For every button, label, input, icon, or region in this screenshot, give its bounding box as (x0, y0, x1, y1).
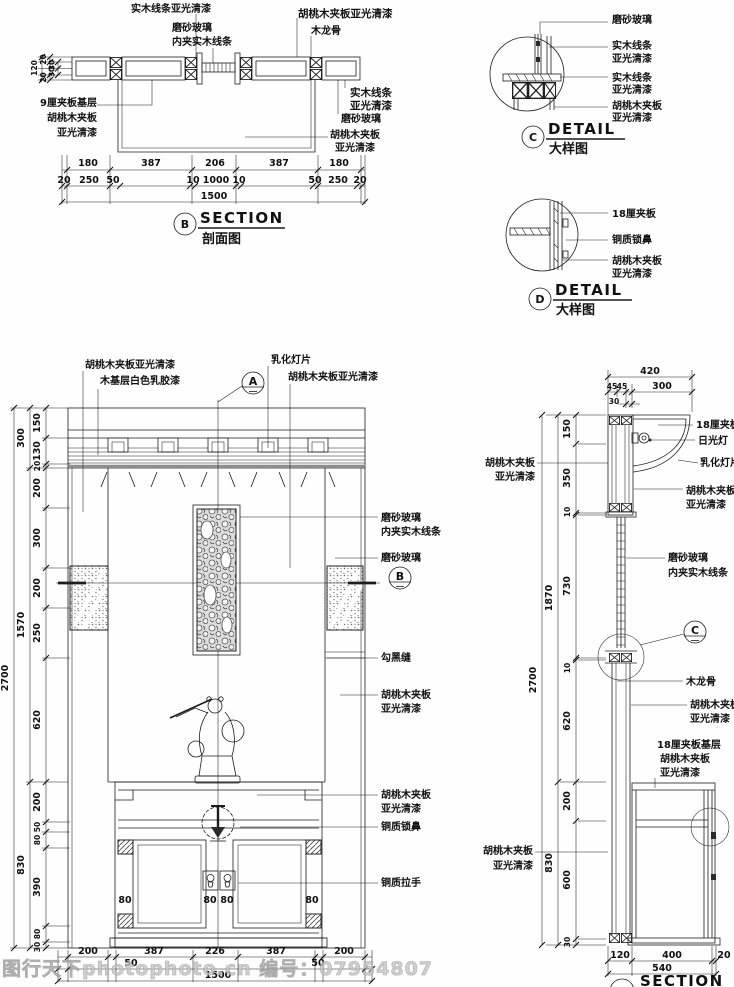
dim-e-20: 20 (33, 461, 42, 471)
label-e-brass-pull: 铜质拉手 (381, 876, 421, 889)
dim-a-45a: 45 (607, 382, 617, 391)
dim-e-300: 300 (16, 428, 27, 448)
statue-figure (170, 697, 244, 783)
label-solid-wood-varnish: 实木线条亚光清漆 (131, 2, 211, 15)
detail-d-drawing: 18厘夹板 铜质锁鼻 胡桃木夹板 亚光清漆 D DETAIL 大样图 (506, 199, 663, 318)
label-a-walnut-r7b: 亚光清漆 (690, 712, 730, 725)
detail-c-title: DETAIL (548, 120, 616, 138)
label-a-fluorescent: 日光灯 (698, 434, 728, 447)
label-e-frosted: 磨砂玻璃 (380, 511, 421, 524)
cad-sheet: 120 20 20 30 30 实木线条亚光清漆 磨砂玻璃 内夹实木线条 胡桃木… (0, 0, 734, 987)
label-matte-varnish: 亚光清漆 (57, 126, 97, 139)
dim-eb-50b: 50 (311, 958, 325, 969)
label-walnut-r2: 亚光清漆 (335, 141, 375, 154)
label-e-inner-wood: 内夹实木线条 (381, 525, 442, 538)
label-e-black-seam: 勾黑缝 (381, 651, 411, 664)
dim-e-200c: 200 (32, 792, 43, 812)
dim-a-200: 200 (562, 791, 573, 811)
detail-d-marker-letter: D (535, 293, 544, 306)
dim-b-250a: 250 (79, 175, 99, 186)
dim-a-420: 420 (640, 366, 660, 377)
section-b-marker-letter: B (181, 218, 189, 231)
label-a-keel: 木龙骨 (685, 675, 716, 688)
dim-a-830: 830 (544, 853, 555, 873)
dim-a-1870: 1870 (544, 584, 555, 611)
dim-b-20a: 20 (57, 175, 71, 186)
dim-a-10a: 10 (563, 507, 572, 517)
label-a-frosted: 磨砂玻璃 (667, 551, 708, 564)
dim-30b: 30 (48, 67, 57, 77)
dim-door-80c: 80 (220, 895, 234, 906)
dim-door-80d: 80 (305, 895, 319, 906)
dim-a-45b: 45 (617, 382, 627, 391)
label-e-wood-base-white: 木基层白色乳胶漆 (99, 374, 180, 387)
dim-e-80a: 80 (33, 835, 42, 845)
dim-ab-20: 20 (717, 950, 731, 961)
dim-eb-387a: 387 (144, 946, 164, 957)
dim-ab-400: 400 (662, 950, 682, 961)
dim-b-387b: 387 (269, 158, 289, 169)
dim-e-30: 30 (33, 942, 42, 952)
dim-e-2700: 2700 (0, 664, 11, 691)
dim-e-250: 250 (32, 623, 43, 643)
label-walnut-r1: 胡桃木夹板 (330, 128, 381, 141)
detail-c-linework (490, 22, 608, 111)
label-a-walnut-left1b: 亚光清漆 (495, 470, 535, 483)
section-b-drawing: 120 20 20 30 30 实木线条亚光清漆 磨砂玻璃 内夹实木线条 胡桃木… (30, 2, 393, 247)
section-a-marker-c: C (691, 624, 699, 637)
label-a-light-sheet: 乳化灯片 (700, 456, 734, 469)
section-b-title: SECTION (200, 209, 284, 227)
label-c-varnish-2: 亚光清漆 (612, 83, 652, 96)
dim-ab-120: 120 (610, 950, 630, 961)
dim-e-200b: 200 (32, 578, 43, 598)
detail-d-title-cn: 大样图 (556, 302, 595, 318)
label-d-varnish: 亚光清漆 (612, 267, 652, 280)
dim-e-300b: 300 (32, 528, 43, 548)
dim-e-200a: 200 (32, 478, 43, 498)
label-walnut-varnish-top: 胡桃木夹板亚光清漆 (298, 7, 393, 20)
label-d-brass-hasp: 铜质锁鼻 (612, 233, 652, 246)
dim-a-730: 730 (562, 576, 573, 596)
label-a-walnut-left1: 胡桃木夹板 (485, 456, 536, 469)
elevation-marker-a: A (249, 375, 258, 388)
dim-b-250b: 250 (328, 175, 348, 186)
dim-b-50a: 50 (106, 175, 120, 186)
detail-d-linework (506, 199, 608, 271)
dim-eb-200b: 200 (334, 946, 354, 957)
dim-b-1000: 1000 (203, 175, 230, 186)
dim-a-620: 620 (562, 711, 573, 731)
label-solid-wood-r1: 实木线条 (350, 86, 392, 99)
label-c-solid-wood-1: 实木线条 (612, 39, 653, 52)
label-a-walnut-left2: 胡桃木夹板 (483, 844, 534, 857)
dim-e-150: 150 (32, 413, 43, 433)
dim-a-10b: 10 (563, 663, 572, 673)
dim-e-830: 830 (16, 855, 27, 875)
detail-c-drawing: 磨砂玻璃 实木线条 亚光清漆 实木线条 亚光清漆 胡桃木夹板 亚光清漆 C DE… (490, 13, 663, 157)
elevation-drawing: A B 胡桃木夹板亚光清漆 木基层白色乳胶漆 乳化灯片 胡桃木夹板亚光清漆 磨砂… (0, 353, 442, 984)
dim-b-180b: 180 (329, 158, 349, 169)
dim-a-30: 30 (609, 397, 619, 406)
dim-b-10a: 10 (186, 175, 200, 186)
dim-eb-1500: 1500 (205, 970, 232, 981)
label-a-18base-c: 亚光清漆 (660, 766, 700, 779)
dim-b-50b: 50 (308, 175, 322, 186)
label-frosted-glass: 磨砂玻璃 (171, 21, 212, 34)
dim-b-10b: 10 (232, 175, 246, 186)
label-e-walnut-top2: 胡桃木夹板亚光清漆 (288, 370, 378, 383)
dim-120: 120 (30, 60, 39, 76)
label-c-walnut: 胡桃木夹板 (612, 99, 663, 112)
dim-eb-387b: 387 (266, 946, 286, 957)
label-a-18base: 18厘夹板基层 (657, 738, 721, 751)
dim-door-80a: 80 (118, 895, 132, 906)
section-a-drawing: C 胡桃木夹板 亚光清漆 18厘夹板 日光灯 乳化灯片 胡桃木夹板 亚光清漆 磨… (483, 366, 734, 987)
label-c-varnish-1: 亚光清漆 (612, 52, 652, 65)
dim-a-150: 150 (562, 419, 573, 439)
label-a-walnut-r7: 胡桃木夹板 (690, 698, 734, 711)
label-e-walnut-r1: 胡桃木夹板 (381, 688, 432, 701)
label-e-walnut-top: 胡桃木夹板亚光清漆 (85, 358, 175, 371)
dim-e-130: 130 (32, 441, 43, 461)
label-e-walnut-r2b: 亚光清漆 (381, 802, 421, 815)
dim-eb-226: 226 (205, 946, 225, 957)
section-b-title-cn: 剖面图 (202, 231, 241, 247)
dim-a-350: 350 (562, 468, 573, 488)
label-a-walnut-r4: 胡桃木夹板 (686, 484, 734, 497)
dim-b-206: 206 (205, 158, 225, 169)
dim-eb-200a: 200 (78, 946, 98, 957)
detail-c-marker-letter: C (529, 131, 537, 144)
label-walnut-plywood: 胡桃木夹板 (47, 111, 98, 124)
dim-b-180a: 180 (78, 158, 98, 169)
label-a-walnut-left2b: 亚光清漆 (493, 859, 533, 872)
label-solid-wood-r2: 亚光清漆 (350, 99, 392, 112)
dim-e-620: 620 (32, 710, 43, 730)
dim-a-2700: 2700 (528, 666, 539, 693)
label-c-solid-wood-2: 实木线条 (612, 71, 653, 84)
dim-a-30b: 30 (563, 937, 572, 947)
dim-e-1570: 1570 (16, 611, 27, 638)
label-a-inner-wood: 内夹实木线条 (668, 566, 729, 579)
label-a-18base-b: 胡桃木夹板 (660, 752, 711, 765)
label-9mm-plywood-base: 9厘夹板基层 (40, 96, 97, 109)
label-wood-keel: 木龙骨 (310, 24, 341, 37)
label-d-18mm-plywood: 18厘夹板 (612, 207, 657, 220)
elevation-linework (56, 366, 380, 948)
dim-e-50: 50 (33, 822, 42, 832)
dim-a-300: 300 (652, 381, 672, 392)
dim-b-387a: 387 (141, 158, 161, 169)
label-e-frosted2: 磨砂玻璃 (380, 551, 421, 564)
label-d-walnut: 胡桃木夹板 (612, 254, 663, 267)
label-e-walnut-r2: 胡桃木夹板 (381, 788, 432, 801)
label-e-brass-hasp: 铜质锁鼻 (381, 820, 421, 833)
dim-b-20b: 20 (353, 175, 367, 186)
dim-eb-50a: 50 (124, 958, 138, 969)
label-c-varnish-3: 亚光清漆 (612, 111, 652, 124)
label-c-frosted-glass: 磨砂玻璃 (611, 13, 652, 26)
label-a-walnut-r4b: 亚光清漆 (686, 498, 726, 511)
detail-c-title-cn: 大样图 (549, 141, 588, 157)
dim-a-600: 600 (562, 870, 573, 890)
section-a-marker-circle (610, 979, 634, 987)
label-inner-wood-strip: 内夹实木线条 (172, 35, 233, 48)
label-e-walnut-r1b: 亚光清漆 (381, 702, 421, 715)
dim-b-1500: 1500 (201, 191, 228, 202)
cad-drawing-svg: 120 20 20 30 30 实木线条亚光清漆 磨砂玻璃 内夹实木线条 胡桃木… (0, 0, 734, 987)
detail-d-title: DETAIL (555, 281, 623, 299)
dim-e-80b: 80 (33, 929, 42, 939)
elevation-marker-b: B (396, 570, 404, 583)
dim-e-390: 390 (32, 877, 43, 897)
label-e-light-sheet: 乳化灯片 (271, 353, 311, 366)
section-a-title: SECTION (640, 972, 724, 987)
label-frosted-glass-r: 磨砂玻璃 (340, 112, 381, 125)
label-a-18mm: 18厘夹板 (696, 418, 734, 431)
dim-door-80b: 80 (203, 895, 217, 906)
